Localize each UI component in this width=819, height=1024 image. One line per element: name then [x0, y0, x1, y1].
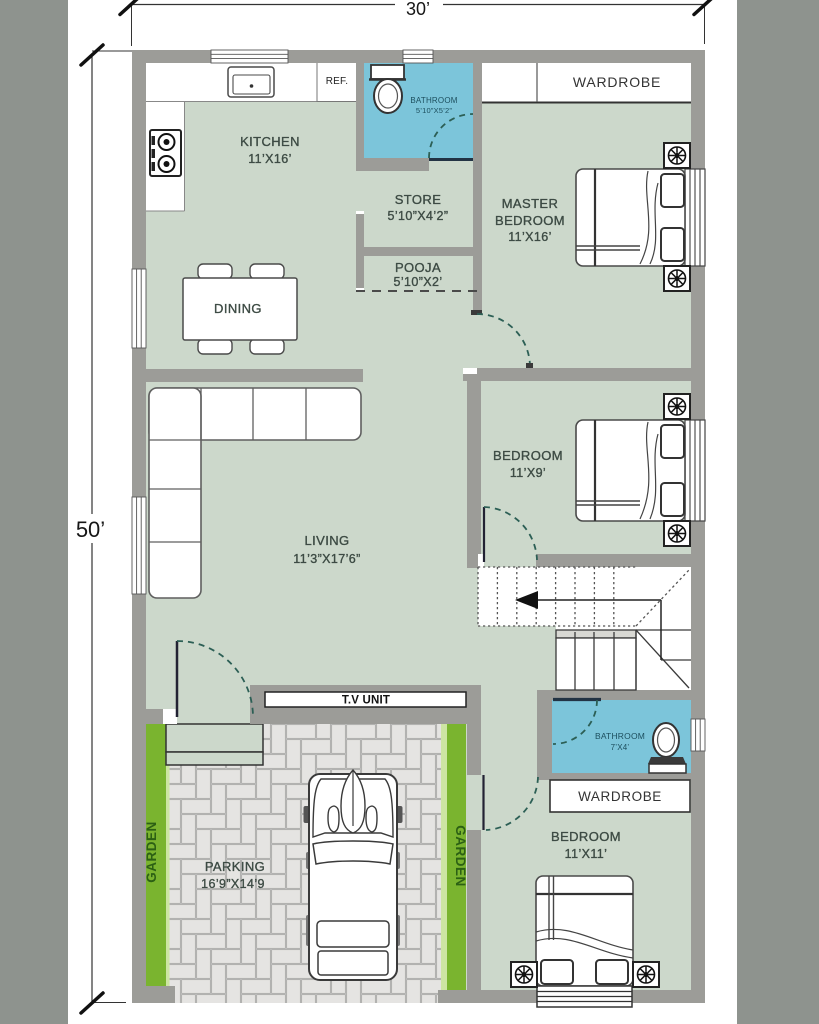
- svg-text:POOJA: POOJA: [395, 260, 441, 275]
- svg-text:16’9”X14’9: 16’9”X14’9: [201, 877, 265, 891]
- svg-text:5’10”X5’2”: 5’10”X5’2”: [416, 106, 452, 115]
- svg-text:DINING: DINING: [214, 301, 262, 316]
- svg-text:5’10”X2’: 5’10”X2’: [393, 275, 442, 289]
- svg-text:7’X4’: 7’X4’: [611, 743, 630, 752]
- svg-text:11’3”X17’6”: 11’3”X17’6”: [293, 552, 360, 566]
- svg-text:LIVING: LIVING: [304, 533, 349, 548]
- svg-text:MASTER: MASTER: [502, 196, 559, 211]
- svg-text:BEDROOM: BEDROOM: [495, 213, 565, 228]
- svg-text:GARDEN: GARDEN: [453, 825, 468, 887]
- svg-text:T.V UNIT: T.V UNIT: [342, 695, 390, 707]
- svg-text:11’X11’: 11’X11’: [565, 847, 608, 861]
- svg-text:WARDROBE: WARDROBE: [573, 74, 661, 90]
- svg-text:11’X16’: 11’X16’: [508, 230, 552, 244]
- svg-text:BEDROOM: BEDROOM: [493, 448, 563, 463]
- svg-text:5’10”X4’2”: 5’10”X4’2”: [388, 209, 449, 223]
- svg-text:11’X9’: 11’X9’: [510, 466, 546, 480]
- svg-text:REF.: REF.: [326, 76, 348, 87]
- svg-text:50’: 50’: [76, 517, 105, 542]
- svg-text:WARDROBE: WARDROBE: [578, 789, 662, 804]
- svg-text:PARKING: PARKING: [205, 859, 265, 874]
- svg-text:STORE: STORE: [395, 192, 442, 207]
- svg-text:BATHROOM: BATHROOM: [595, 731, 645, 741]
- svg-text:11’X16’: 11’X16’: [248, 152, 292, 166]
- svg-text:BEDROOM: BEDROOM: [551, 829, 621, 844]
- svg-text:KITCHEN: KITCHEN: [240, 134, 300, 149]
- svg-text:GARDEN: GARDEN: [144, 821, 159, 883]
- svg-text:BATHROOM: BATHROOM: [410, 96, 457, 105]
- svg-text:30’: 30’: [406, 0, 430, 19]
